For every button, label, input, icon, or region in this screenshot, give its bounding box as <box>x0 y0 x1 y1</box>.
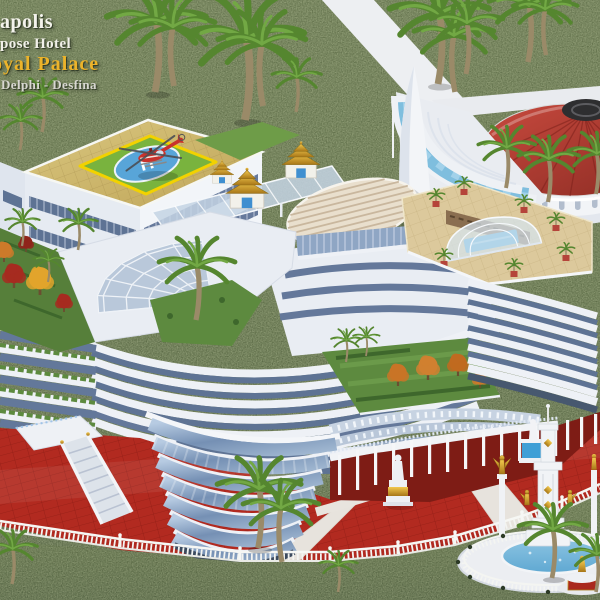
gold-angel-column-right <box>591 454 597 540</box>
hotel-rendering: H <box>0 0 600 600</box>
architectural-rendering: H <box>0 0 600 600</box>
